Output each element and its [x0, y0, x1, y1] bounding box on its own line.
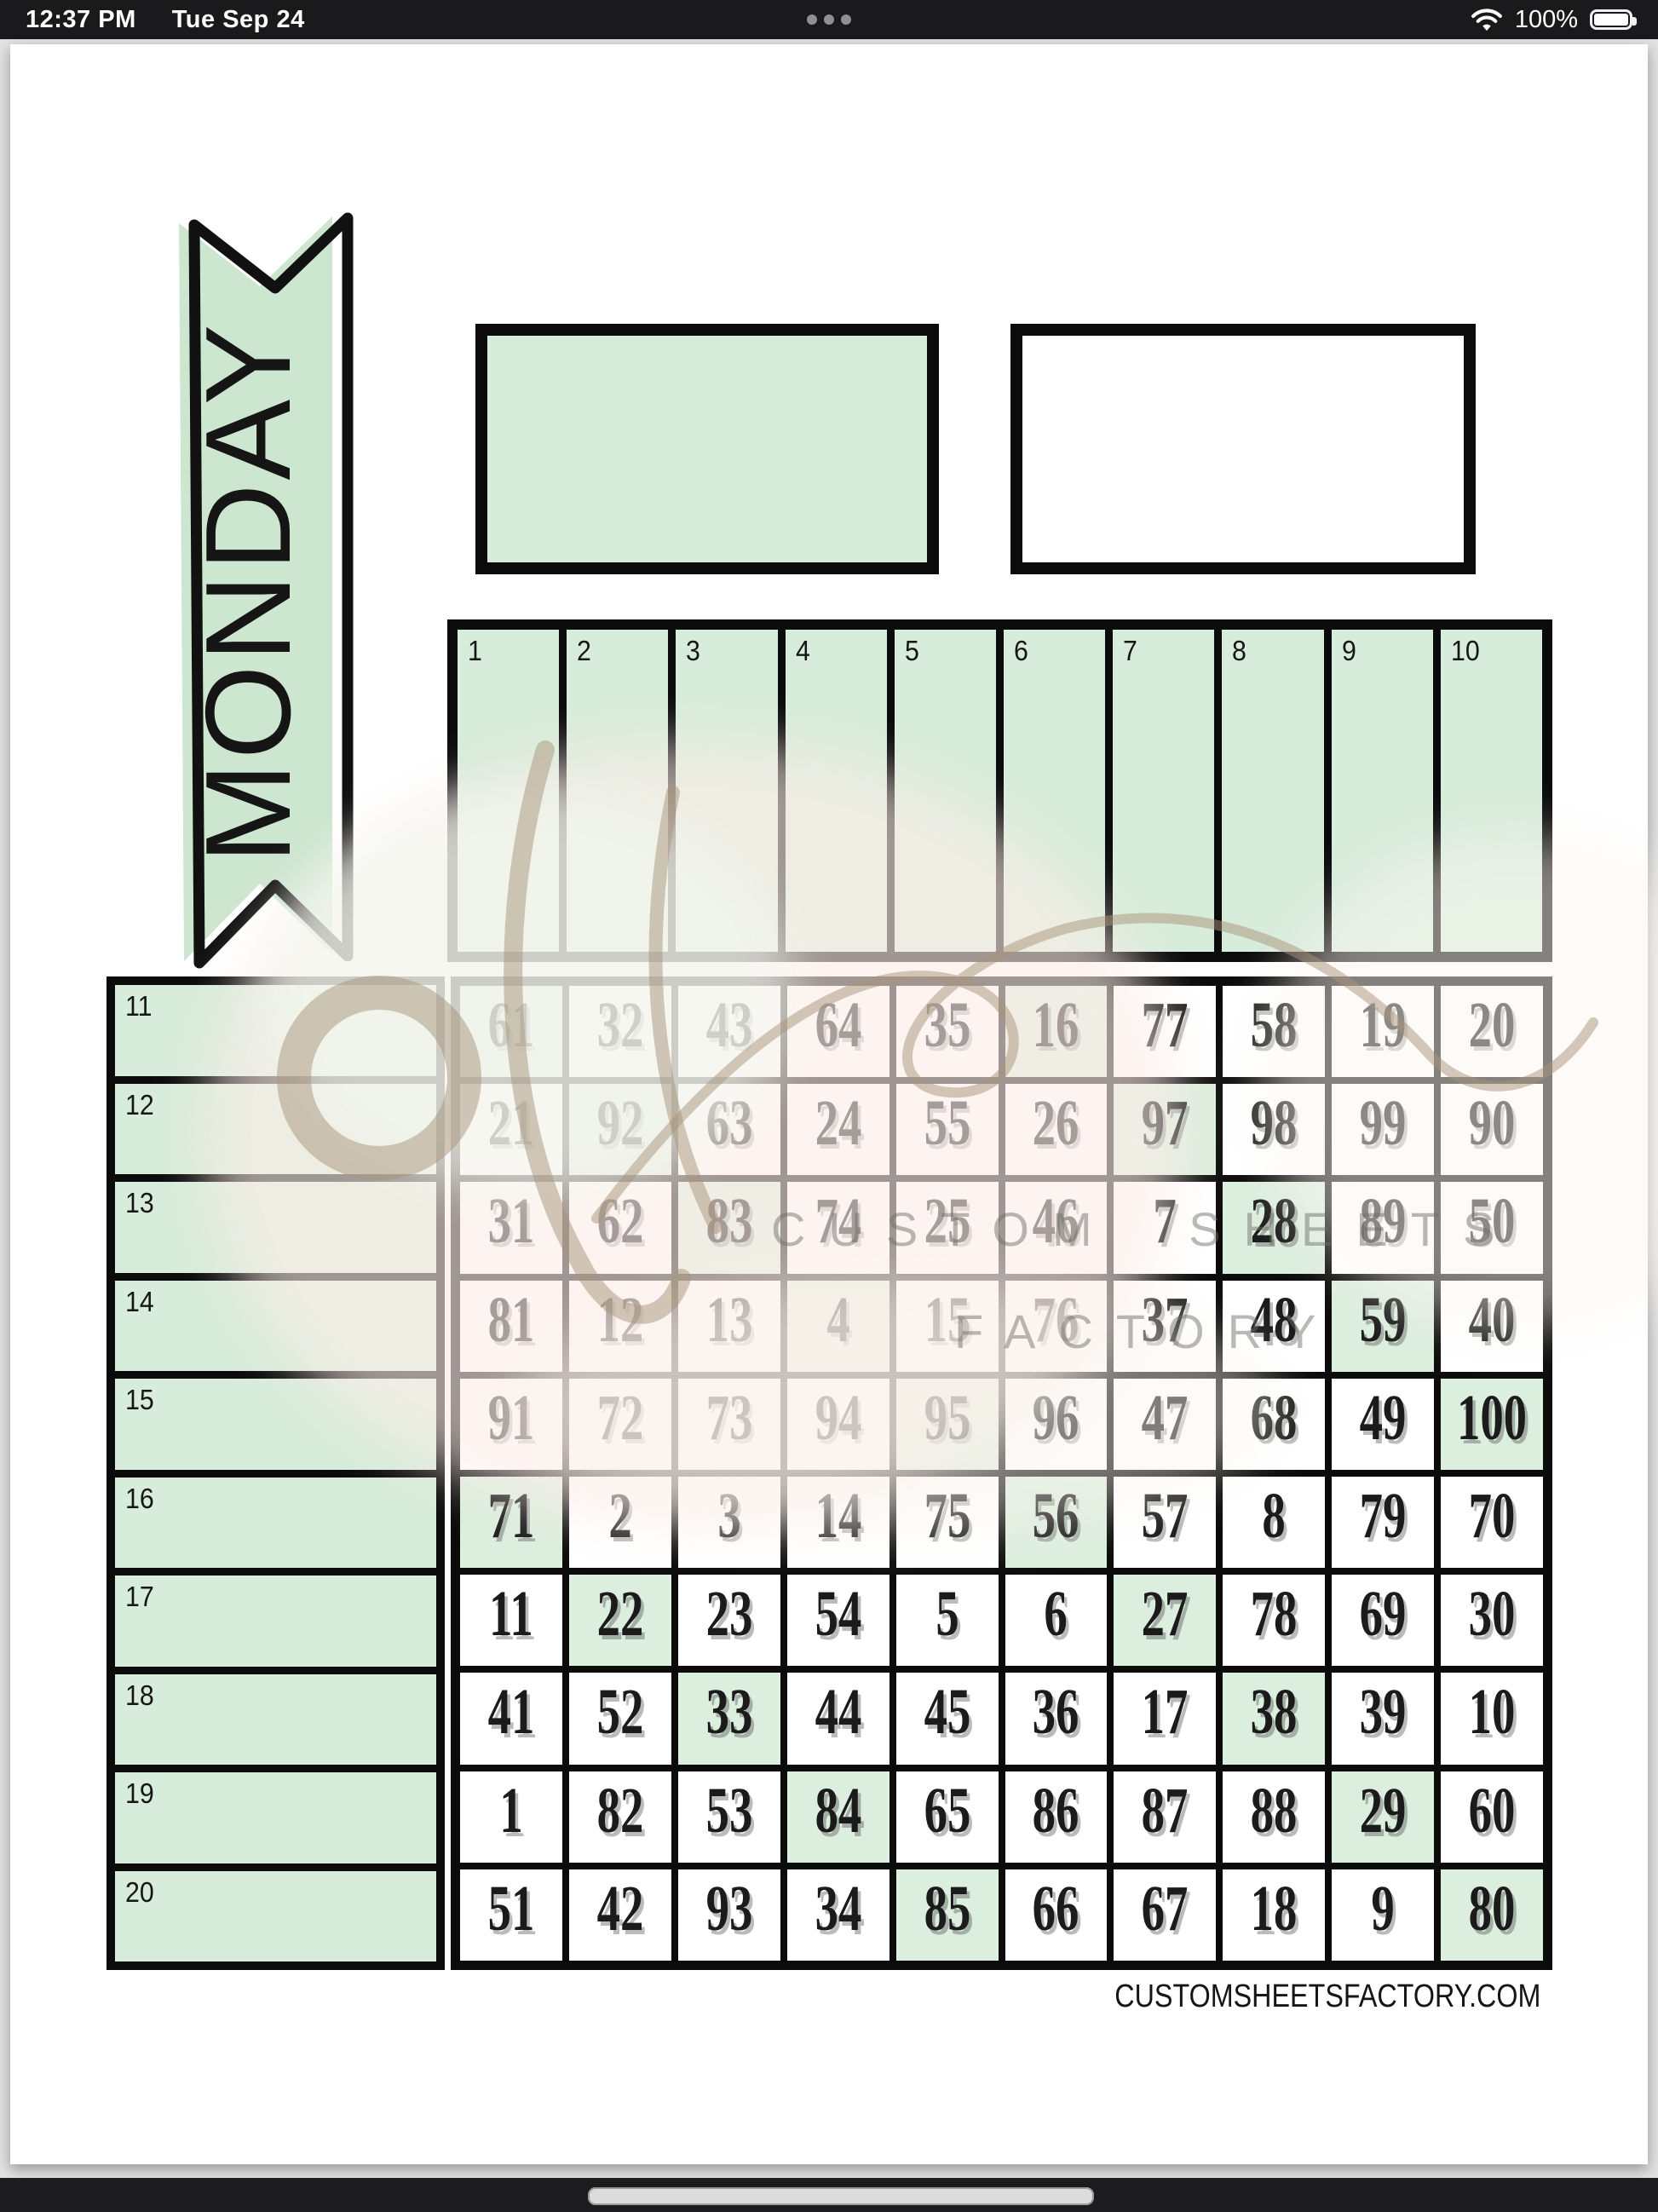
- grid-number: 20: [1469, 988, 1516, 1063]
- grid-number: 54: [815, 1577, 861, 1651]
- grid-cell-37: 37: [1114, 1281, 1216, 1372]
- grid-cell-44: 44: [787, 1673, 889, 1764]
- grid-number: 45: [924, 1675, 970, 1749]
- grid-cell-97: 97: [1114, 1084, 1216, 1175]
- grid-number: 90: [1469, 1086, 1516, 1161]
- battery-percent: 100%: [1515, 6, 1578, 34]
- column-cell-1: 1: [458, 630, 559, 952]
- grid-cell-42: 42: [569, 1869, 671, 1961]
- grid-cell-99: 99: [1332, 1084, 1434, 1175]
- grid-number: 99: [1360, 1086, 1407, 1161]
- column-label: 3: [686, 635, 700, 667]
- grid-cell-25: 25: [896, 1182, 999, 1273]
- grid-number: 39: [1360, 1675, 1407, 1749]
- grid-number: 48: [1251, 1283, 1298, 1357]
- grid-number: 91: [488, 1381, 535, 1455]
- grid-cell-13: 13: [678, 1281, 780, 1372]
- grid-number: 68: [1251, 1381, 1298, 1455]
- grid-cell-4: 4: [787, 1281, 889, 1372]
- grid-cell-38: 38: [1223, 1673, 1325, 1764]
- row-label: 14: [125, 1286, 154, 1318]
- grid-cell-6: 6: [1005, 1575, 1108, 1666]
- grid-number: 11: [489, 1577, 533, 1651]
- grid-number: 70: [1469, 1479, 1516, 1553]
- planner-sheet: MONDAY 12345678910 11121314151617181920 …: [10, 44, 1648, 2164]
- grid-number: 85: [924, 1872, 970, 1946]
- grid-number: 61: [488, 988, 535, 1063]
- grid-number: 4: [826, 1283, 849, 1357]
- grid-number: 78: [1251, 1577, 1298, 1651]
- website-url: CUSTOMSHEETSFACTORY.COM: [1114, 1979, 1540, 2015]
- status-date: Tue Sep 24: [172, 6, 305, 34]
- column-label: 10: [1451, 635, 1480, 667]
- grid-number: 89: [1360, 1184, 1407, 1259]
- grid-number: 6: [1045, 1577, 1068, 1651]
- row-label: 13: [125, 1187, 154, 1219]
- grid-number: 62: [596, 1184, 643, 1259]
- column-cell-10: 10: [1441, 630, 1542, 952]
- grid-cell-2: 2: [569, 1477, 671, 1568]
- grid-cell-39: 39: [1332, 1673, 1434, 1764]
- grid-cell-49: 49: [1332, 1379, 1434, 1470]
- grid-cell-35: 35: [896, 986, 999, 1077]
- grid-cell-45: 45: [896, 1673, 999, 1764]
- columns-1-10: 12345678910: [447, 619, 1552, 962]
- grid-cell-70: 70: [1441, 1477, 1543, 1568]
- grid-number: 30: [1469, 1577, 1516, 1651]
- column-label: 5: [905, 635, 919, 667]
- grid-cell-93: 93: [678, 1869, 780, 1961]
- grid-number: 83: [705, 1184, 752, 1259]
- grid-number: 86: [1033, 1774, 1079, 1848]
- row-label: 12: [125, 1089, 154, 1121]
- ipad-screen: 12:37 PM Tue Sep 24 100% MONDAY: [0, 0, 1658, 2212]
- grid-number: 80: [1469, 1872, 1516, 1946]
- grid-number: 87: [1142, 1774, 1189, 1848]
- grid-number: 58: [1251, 988, 1298, 1063]
- grid-number: 31: [488, 1184, 535, 1259]
- grid-cell-41: 41: [460, 1673, 562, 1764]
- battery-icon: [1590, 9, 1632, 30]
- row-label: 17: [125, 1581, 154, 1613]
- grid-cell-43: 43: [678, 986, 780, 1077]
- grid-cell-89: 89: [1332, 1182, 1434, 1273]
- row-cell-20: 20: [115, 1871, 436, 1962]
- grid-cell-32: 32: [569, 986, 671, 1077]
- monday-banner: MONDAY: [162, 162, 375, 997]
- grid-cell-85: 85: [896, 1869, 999, 1961]
- grid-number: 7: [1154, 1184, 1177, 1259]
- grid-cell-100: 100: [1441, 1379, 1543, 1470]
- column-label: 7: [1123, 635, 1137, 667]
- grid-cell-27: 27: [1114, 1575, 1216, 1666]
- grid-number: 67: [1142, 1872, 1189, 1946]
- column-label: 2: [577, 635, 591, 667]
- grid-cell-88: 88: [1223, 1771, 1325, 1863]
- grid-number: 76: [1033, 1283, 1079, 1357]
- row-label: 11: [125, 990, 153, 1022]
- bottom-bar: [0, 2178, 1658, 2212]
- grid-cell-14: 14: [787, 1477, 889, 1568]
- grid-number: 73: [705, 1381, 752, 1455]
- grid-cell-18: 18: [1223, 1869, 1325, 1961]
- tracker-box-filled: [475, 324, 939, 574]
- grid-number: 32: [596, 988, 643, 1063]
- grid-number: 23: [705, 1577, 752, 1651]
- grid-cell-68: 68: [1223, 1379, 1325, 1470]
- grid-number: 98: [1251, 1086, 1298, 1161]
- grid-cell-20: 20: [1441, 986, 1543, 1077]
- grid-cell-82: 82: [569, 1771, 671, 1863]
- grid-number: 53: [705, 1774, 752, 1848]
- grid-number: 17: [1142, 1675, 1189, 1749]
- grid-cell-69: 69: [1332, 1575, 1434, 1666]
- grid-number: 59: [1360, 1283, 1407, 1357]
- grid-number: 96: [1033, 1381, 1079, 1455]
- grid-cell-96: 96: [1005, 1379, 1108, 1470]
- column-cell-9: 9: [1332, 630, 1433, 952]
- grid-cell-62: 62: [569, 1182, 671, 1273]
- grid-cell-61: 61: [460, 986, 562, 1077]
- grid-number: 72: [596, 1381, 643, 1455]
- grid-number: 49: [1360, 1381, 1407, 1455]
- grid-number: 8: [1263, 1479, 1286, 1553]
- grid-cell-22: 22: [569, 1575, 671, 1666]
- grid-number: 37: [1142, 1283, 1189, 1357]
- grid-cell-23: 23: [678, 1575, 780, 1666]
- grid-cell-76: 76: [1005, 1281, 1108, 1372]
- grid-cell-72: 72: [569, 1379, 671, 1470]
- grid-number: 29: [1360, 1774, 1407, 1848]
- grid-cell-60: 60: [1441, 1771, 1543, 1863]
- grid-cell-58: 58: [1223, 986, 1325, 1077]
- row-cell-15: 15: [115, 1379, 436, 1470]
- grid-number: 2: [608, 1479, 631, 1553]
- rows-11-20: 11121314151617181920: [107, 976, 445, 1970]
- grid-cell-92: 92: [569, 1084, 671, 1175]
- grid-cell-52: 52: [569, 1673, 671, 1764]
- column-cell-7: 7: [1113, 630, 1214, 952]
- wifi-icon: [1471, 8, 1503, 32]
- grid-number: 95: [924, 1381, 970, 1455]
- grid-number: 18: [1251, 1872, 1298, 1946]
- grid-number: 50: [1469, 1184, 1516, 1259]
- grid-number: 56: [1033, 1479, 1079, 1553]
- grid-cell-36: 36: [1005, 1673, 1108, 1764]
- grid-cell-31: 31: [460, 1182, 562, 1273]
- grid-cell-65: 65: [896, 1771, 999, 1863]
- grid-number: 13: [705, 1283, 752, 1357]
- grid-number: 14: [815, 1479, 861, 1553]
- grid-number: 19: [1360, 988, 1407, 1063]
- status-bar: 12:37 PM Tue Sep 24 100%: [0, 0, 1658, 39]
- grid-cell-7: 7: [1114, 1182, 1216, 1273]
- grid-number: 57: [1142, 1479, 1189, 1553]
- grid-number: 40: [1469, 1283, 1516, 1357]
- grid-number: 46: [1033, 1184, 1079, 1259]
- grid-number: 3: [717, 1479, 740, 1553]
- row-label: 15: [125, 1384, 154, 1416]
- column-cell-2: 2: [567, 630, 668, 952]
- row-label: 20: [125, 1876, 154, 1909]
- row-cell-16: 16: [115, 1478, 436, 1569]
- grid-cell-80: 80: [1441, 1869, 1543, 1961]
- grid-number: 44: [815, 1675, 861, 1749]
- status-left: 12:37 PM Tue Sep 24: [26, 6, 305, 34]
- grid-cell-15: 15: [896, 1281, 999, 1372]
- grid-cell-59: 59: [1332, 1281, 1434, 1372]
- grid-cell-30: 30: [1441, 1575, 1543, 1666]
- grid-cell-9: 9: [1332, 1869, 1434, 1961]
- grid-number: 25: [924, 1184, 970, 1259]
- column-cell-3: 3: [676, 630, 777, 952]
- grid-cell-12: 12: [569, 1281, 671, 1372]
- grid-number: 52: [596, 1675, 643, 1749]
- grid-cell-79: 79: [1332, 1477, 1434, 1568]
- column-label: 4: [796, 635, 810, 667]
- grid-number: 5: [936, 1577, 959, 1651]
- status-time: 12:37 PM: [26, 6, 136, 34]
- grid-number: 47: [1142, 1381, 1189, 1455]
- grid-cell-26: 26: [1005, 1084, 1108, 1175]
- grid-cell-47: 47: [1114, 1379, 1216, 1470]
- grid-cell-75: 75: [896, 1477, 999, 1568]
- grid-number: 81: [488, 1283, 535, 1357]
- grid-number: 79: [1360, 1479, 1407, 1553]
- grid-cell-98: 98: [1223, 1084, 1325, 1175]
- grid-cell-90: 90: [1441, 1084, 1543, 1175]
- grid-number: 94: [815, 1381, 861, 1455]
- column-label: 6: [1014, 635, 1028, 667]
- grid-number: 9: [1371, 1872, 1394, 1946]
- grid-number: 97: [1142, 1086, 1189, 1161]
- column-cell-8: 8: [1222, 630, 1323, 952]
- grid-cell-94: 94: [787, 1379, 889, 1470]
- grid-number: 71: [488, 1479, 535, 1553]
- grid-number: 24: [815, 1086, 861, 1161]
- grid-cell-63: 63: [678, 1084, 780, 1175]
- grid-number: 26: [1033, 1086, 1079, 1161]
- grid-number: 35: [924, 988, 970, 1063]
- grid-number: 22: [596, 1577, 643, 1651]
- row-label: 18: [125, 1679, 154, 1712]
- grid-cell-34: 34: [787, 1869, 889, 1961]
- grid-cell-83: 83: [678, 1182, 780, 1273]
- grid-number: 36: [1033, 1675, 1079, 1749]
- grid-cell-8: 8: [1223, 1477, 1325, 1568]
- grid-cell-19: 19: [1332, 986, 1434, 1077]
- row-cell-14: 14: [115, 1281, 436, 1372]
- grid-number: 65: [924, 1774, 970, 1848]
- grid-number: 84: [815, 1774, 861, 1848]
- grid-cell-33: 33: [678, 1673, 780, 1764]
- row-cell-11: 11: [115, 985, 436, 1076]
- grid-cell-5: 5: [896, 1575, 999, 1666]
- row-label: 16: [125, 1483, 154, 1515]
- grid-number: 15: [924, 1283, 970, 1357]
- grid-cell-64: 64: [787, 986, 889, 1077]
- grid-number: 60: [1469, 1774, 1516, 1848]
- grid-cell-71: 71: [460, 1477, 562, 1568]
- grid-cell-78: 78: [1223, 1575, 1325, 1666]
- hundred-chart-grid: 6132436435167758192021926324552697989990…: [451, 976, 1552, 1970]
- grid-number: 21: [488, 1086, 535, 1161]
- banner-label: MONDAY: [181, 321, 316, 864]
- grid-cell-29: 29: [1332, 1771, 1434, 1863]
- grid-number: 12: [596, 1283, 643, 1357]
- grid-number: 10: [1469, 1675, 1516, 1749]
- grid-number: 55: [924, 1086, 970, 1161]
- column-cell-4: 4: [786, 630, 887, 952]
- grid-number: 51: [488, 1872, 535, 1946]
- grid-cell-21: 21: [460, 1084, 562, 1175]
- grid-cell-86: 86: [1005, 1771, 1108, 1863]
- grid-cell-91: 91: [460, 1379, 562, 1470]
- grid-number: 38: [1251, 1675, 1298, 1749]
- grid-cell-40: 40: [1441, 1281, 1543, 1372]
- row-cell-17: 17: [115, 1575, 436, 1667]
- grid-number: 27: [1142, 1577, 1189, 1651]
- grid-cell-67: 67: [1114, 1869, 1216, 1961]
- grid-cell-3: 3: [678, 1477, 780, 1568]
- grid-cell-95: 95: [896, 1379, 999, 1470]
- grid-cell-55: 55: [896, 1084, 999, 1175]
- grid-cell-54: 54: [787, 1575, 889, 1666]
- column-label: 9: [1342, 635, 1356, 667]
- grid-cell-50: 50: [1441, 1182, 1543, 1273]
- grid-cell-17: 17: [1114, 1673, 1216, 1764]
- grid-number: 16: [1033, 988, 1079, 1063]
- scrollbar-thumb[interactable]: [588, 2187, 1094, 2205]
- grid-number: 66: [1033, 1872, 1079, 1946]
- column-cell-5: 5: [895, 630, 996, 952]
- column-cell-6: 6: [1004, 630, 1105, 952]
- grid-number: 34: [815, 1872, 861, 1946]
- grid-cell-16: 16: [1005, 986, 1108, 1077]
- row-cell-13: 13: [115, 1182, 436, 1273]
- grid-cell-57: 57: [1114, 1477, 1216, 1568]
- grid-cell-10: 10: [1441, 1673, 1543, 1764]
- grid-number: 82: [596, 1774, 643, 1848]
- grid-number: 74: [815, 1184, 861, 1259]
- row-label: 19: [125, 1777, 154, 1810]
- grid-cell-73: 73: [678, 1379, 780, 1470]
- grid-cell-84: 84: [787, 1771, 889, 1863]
- grid-number: 69: [1360, 1577, 1407, 1651]
- grid-number: 75: [924, 1479, 970, 1553]
- grid-cell-28: 28: [1223, 1182, 1325, 1273]
- grid-cell-46: 46: [1005, 1182, 1108, 1273]
- column-label: 8: [1232, 635, 1246, 667]
- grid-number: 1: [499, 1774, 522, 1848]
- grid-cell-11: 11: [460, 1575, 562, 1666]
- grid-cell-51: 51: [460, 1869, 562, 1961]
- grid-cell-77: 77: [1114, 986, 1216, 1077]
- column-label: 1: [468, 635, 482, 667]
- row-cell-19: 19: [115, 1772, 436, 1863]
- grid-cell-66: 66: [1005, 1869, 1108, 1961]
- grid-number: 43: [705, 988, 752, 1063]
- grid-cell-1: 1: [460, 1771, 562, 1863]
- grid-cell-48: 48: [1223, 1281, 1325, 1372]
- tracker-box-empty: [1010, 324, 1476, 574]
- grid-cell-53: 53: [678, 1771, 780, 1863]
- grid-number: 64: [815, 988, 861, 1063]
- multitask-dots-icon: [803, 0, 855, 39]
- status-right: 100%: [1471, 6, 1632, 34]
- grid-number: 77: [1142, 988, 1189, 1063]
- grid-number: 88: [1251, 1774, 1298, 1848]
- row-cell-12: 12: [115, 1084, 436, 1175]
- grid-cell-56: 56: [1005, 1477, 1108, 1568]
- grid-number: 100: [1457, 1381, 1527, 1455]
- grid-number: 63: [705, 1086, 752, 1161]
- grid-number: 41: [488, 1675, 535, 1749]
- grid-cell-74: 74: [787, 1182, 889, 1273]
- grid-cell-24: 24: [787, 1084, 889, 1175]
- grid-number: 33: [705, 1675, 752, 1749]
- grid-cell-81: 81: [460, 1281, 562, 1372]
- grid-cell-87: 87: [1114, 1771, 1216, 1863]
- grid-number: 42: [596, 1872, 643, 1946]
- row-cell-18: 18: [115, 1674, 436, 1766]
- grid-number: 92: [596, 1086, 643, 1161]
- grid-number: 93: [705, 1872, 752, 1946]
- grid-number: 28: [1251, 1184, 1298, 1259]
